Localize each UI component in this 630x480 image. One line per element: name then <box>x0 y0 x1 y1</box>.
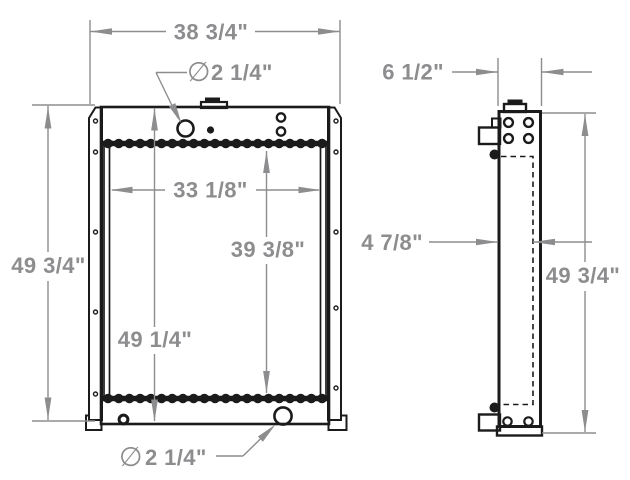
dim-core-depth: 4 7/8" <box>361 230 592 255</box>
side-body-outline <box>499 112 541 427</box>
dim-label-overall-height-left: 49 3/4" <box>11 253 85 278</box>
dim-label-core-height: 39 3/8" <box>231 237 305 262</box>
dim-label-overall-height-right: 49 3/4" <box>546 263 620 288</box>
dim-top-port: ∅ 2 1/4" <box>156 57 273 124</box>
drain-hole <box>119 415 128 424</box>
radiator-technical-drawing: 38 3/4" ∅ 2 1/4" 33 1/8" 39 3/8" <box>0 0 630 480</box>
front-body-outline <box>101 107 329 424</box>
dim-label-top-port: 2 1/4" <box>211 60 273 85</box>
dim-label-overall-width: 38 3/4" <box>174 20 248 45</box>
dim-bottom-port: ∅ 2 1/4" <box>119 425 276 473</box>
side-holes-bottom <box>503 417 532 425</box>
top-right-hole-upper <box>277 113 285 121</box>
top-port-hole <box>178 121 194 137</box>
side-bracket-top <box>479 119 501 145</box>
dim-core-width: 33 1/8" <box>111 178 321 203</box>
side-pin-bottom <box>490 403 500 413</box>
bottom-port-hole <box>274 407 291 424</box>
dim-label-overall-depth: 6 1/2" <box>382 60 444 85</box>
top-right-hole-lower <box>277 127 285 135</box>
diameter-symbol: ∅ <box>187 57 211 87</box>
front-side-plate-right <box>328 108 347 431</box>
dim-overall-height-right: 49 3/4" <box>542 113 620 433</box>
side-view <box>479 101 542 436</box>
core-outline-dashed <box>501 157 533 405</box>
dim-overall-depth: 6 1/2" <box>382 58 592 106</box>
dim-label-core-depth: 4 7/8" <box>361 230 423 255</box>
dim-tank-height: 49 1/4" <box>118 108 192 422</box>
diameter-symbol: ∅ <box>119 442 143 472</box>
dim-label-bottom-port: 2 1/4" <box>145 445 207 470</box>
dim-label-core-width: 33 1/8" <box>173 178 247 203</box>
top-small-hole <box>207 126 214 133</box>
side-holes-top <box>504 118 533 143</box>
front-side-plate-left <box>86 108 102 431</box>
dim-label-tank-height: 49 1/4" <box>118 327 192 352</box>
side-pin-top <box>490 150 500 160</box>
front-view <box>86 99 347 431</box>
dim-overall-height-left: 49 3/4" <box>11 105 95 421</box>
